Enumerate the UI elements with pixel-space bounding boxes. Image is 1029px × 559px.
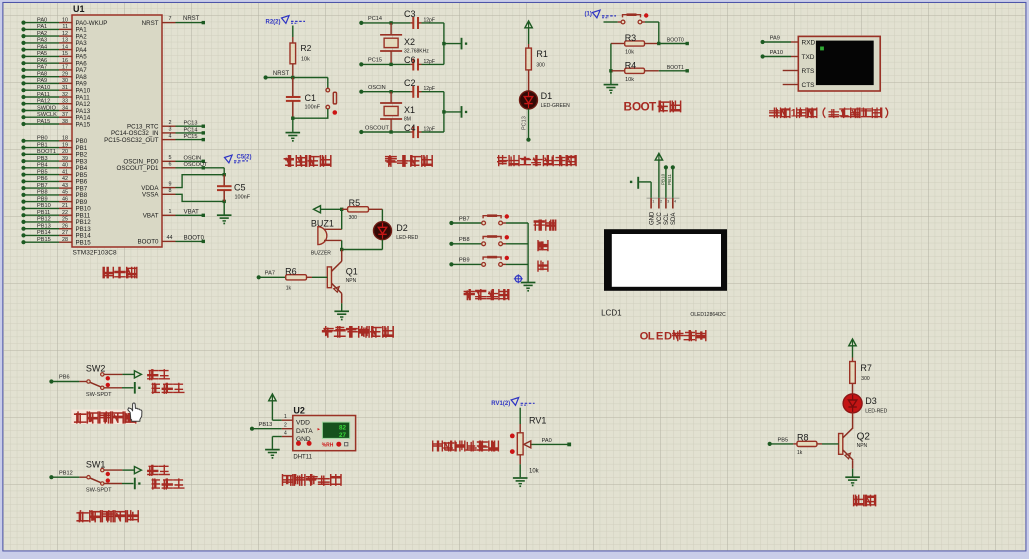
svg-text:PB14: PB14 [37, 230, 51, 236]
svg-text:X1: X1 [404, 105, 415, 115]
svg-text:PA5: PA5 [37, 51, 47, 57]
svg-text:C3: C3 [404, 9, 416, 19]
svg-text:PA7: PA7 [37, 65, 47, 71]
svg-text:PC15: PC15 [368, 58, 382, 64]
svg-text:C2: C2 [404, 78, 416, 88]
svg-text:PA1: PA1 [37, 24, 47, 30]
svg-text:VBAT: VBAT [143, 213, 159, 220]
svg-text:1: 1 [284, 414, 287, 420]
svg-text:D2: D2 [396, 223, 408, 233]
svg-text:NRST: NRST [142, 20, 159, 27]
svg-text:PB6: PB6 [59, 375, 70, 381]
svg-text:PB7: PB7 [37, 183, 48, 189]
svg-text:PA10: PA10 [770, 50, 783, 56]
svg-text:300: 300 [536, 63, 545, 69]
svg-text:PC14: PC14 [184, 127, 198, 133]
svg-text:NPN: NPN [857, 443, 868, 449]
svg-text:B: B [624, 100, 633, 114]
svg-text:BOOT0: BOOT0 [138, 239, 160, 246]
svg-text:46: 46 [62, 196, 68, 202]
svg-text:10k: 10k [301, 57, 310, 63]
svg-text:NPN: NPN [346, 278, 357, 284]
svg-text:CTS: CTS [802, 82, 816, 89]
svg-text:BUZZER: BUZZER [311, 251, 331, 257]
svg-text:%RH: %RH [322, 443, 334, 449]
svg-text:SWCLK: SWCLK [37, 112, 57, 118]
svg-text:STM32F103C8: STM32F103C8 [73, 250, 117, 257]
svg-text:12: 12 [62, 31, 68, 37]
svg-text:PB11: PB11 [37, 210, 50, 216]
svg-text:17: 17 [62, 65, 68, 71]
svg-text:SWDIO: SWDIO [37, 105, 57, 111]
svg-text:R7: R7 [860, 363, 872, 373]
svg-text:PB15: PB15 [37, 237, 51, 243]
svg-text:22: 22 [62, 210, 68, 216]
svg-text:BOOT1: BOOT1 [667, 65, 684, 71]
svg-text:PA4: PA4 [37, 44, 47, 50]
svg-text:4: 4 [169, 133, 172, 139]
svg-text:OSCIN: OSCIN [368, 85, 386, 91]
svg-text:BOOT1: BOOT1 [37, 149, 56, 155]
svg-text:PB6: PB6 [37, 176, 48, 182]
svg-text:100nF: 100nF [305, 105, 321, 111]
svg-text:X2: X2 [404, 37, 415, 47]
svg-text:300: 300 [861, 376, 870, 382]
svg-text:27: 27 [339, 432, 347, 439]
svg-text:PA7: PA7 [265, 271, 275, 277]
svg-text:TXD: TXD [802, 54, 815, 61]
svg-text:27: 27 [62, 230, 68, 236]
svg-text:PB8: PB8 [37, 190, 48, 196]
svg-text:10k: 10k [625, 50, 634, 56]
svg-text:12pF: 12pF [424, 59, 435, 65]
svg-text:SCL: SCL [664, 213, 670, 225]
svg-text:BUZ1: BUZ1 [311, 219, 334, 229]
svg-text:SW2: SW2 [86, 364, 106, 374]
svg-text:1: 1 [652, 200, 654, 204]
svg-text:SW1: SW1 [86, 459, 106, 469]
svg-text:10k: 10k [625, 77, 634, 83]
svg-text:VDD: VDD [296, 420, 310, 427]
svg-text:21: 21 [62, 203, 68, 209]
svg-text:2: 2 [284, 423, 287, 429]
svg-text:RTS: RTS [802, 68, 816, 75]
svg-text:15: 15 [62, 51, 68, 57]
svg-text:PB4: PB4 [37, 163, 48, 169]
svg-text:C1: C1 [305, 93, 317, 103]
svg-text:11: 11 [62, 24, 68, 30]
svg-text:Q1: Q1 [346, 267, 358, 277]
svg-text:45: 45 [62, 190, 68, 196]
svg-text:OSCOUT: OSCOUT [365, 125, 390, 131]
svg-text:300: 300 [349, 215, 358, 221]
svg-text:8: 8 [169, 188, 172, 194]
svg-text:10: 10 [62, 17, 68, 23]
svg-text:LED-GREEN: LED-GREEN [541, 103, 571, 109]
svg-text:19: 19 [62, 142, 68, 148]
svg-text:30: 30 [62, 78, 68, 84]
svg-text:R3: R3 [625, 33, 637, 43]
svg-text:D3: D3 [865, 396, 877, 406]
svg-text:PC15: PC15 [184, 134, 198, 140]
svg-text:VBAT: VBAT [184, 209, 200, 215]
svg-text:5: 5 [169, 155, 172, 161]
svg-text:PA10: PA10 [37, 85, 50, 91]
svg-text:OSCOUT: OSCOUT [184, 162, 209, 168]
svg-text:9: 9 [169, 181, 172, 187]
svg-text:DHT11: DHT11 [293, 455, 312, 461]
svg-text:RV1(2): RV1(2) [491, 401, 510, 407]
svg-text:VSSA: VSSA [142, 192, 159, 199]
svg-text:LED-RED: LED-RED [396, 235, 418, 241]
svg-text:RV1: RV1 [529, 416, 546, 426]
svg-text:82: 82 [339, 425, 347, 432]
svg-text:Q2: Q2 [857, 432, 871, 443]
svg-text:R4: R4 [625, 60, 637, 70]
svg-text:SW-SPDT: SW-SPDT [86, 488, 112, 494]
svg-text:8M: 8M [404, 117, 411, 123]
svg-text:1k: 1k [797, 450, 803, 456]
svg-text:39: 39 [62, 156, 68, 162]
svg-text:1: 1 [791, 108, 797, 120]
svg-text:PA0: PA0 [37, 17, 47, 23]
svg-text:C5(2): C5(2) [237, 155, 252, 161]
svg-text:29: 29 [62, 72, 68, 78]
svg-text:PB9: PB9 [459, 258, 470, 264]
svg-text:PB1: PB1 [37, 142, 48, 148]
svg-text:4: 4 [284, 431, 287, 437]
svg-text:RXD: RXD [802, 40, 816, 47]
svg-text:16: 16 [62, 58, 68, 64]
svg-text:PA15: PA15 [76, 121, 91, 128]
svg-text:PA2: PA2 [37, 31, 47, 37]
svg-text:33: 33 [62, 99, 68, 105]
svg-text:GND: GND [649, 211, 655, 225]
svg-text:12pF: 12pF [424, 86, 435, 92]
svg-text:12pF: 12pF [424, 17, 435, 23]
svg-text:PA9: PA9 [770, 36, 780, 42]
svg-text:13: 13 [62, 38, 68, 44]
svg-text:32: 32 [62, 92, 68, 98]
svg-text:100nF: 100nF [235, 195, 251, 201]
svg-text:PB5: PB5 [778, 437, 789, 443]
svg-text:PA9: PA9 [37, 78, 47, 84]
svg-text:D1: D1 [541, 91, 553, 101]
svg-text:R8: R8 [797, 433, 809, 443]
svg-text:BOOT0: BOOT0 [184, 235, 205, 241]
svg-text:PB13: PB13 [259, 422, 273, 428]
svg-text:42: 42 [62, 176, 68, 182]
svg-text:R2: R2 [301, 43, 312, 53]
svg-text:37: 37 [62, 112, 68, 118]
svg-text:2: 2 [660, 200, 662, 204]
svg-text:7: 7 [169, 16, 172, 22]
svg-text:SW-SPDT: SW-SPDT [86, 392, 112, 398]
svg-text:4: 4 [674, 200, 676, 204]
svg-text:PB0: PB0 [37, 136, 48, 142]
svg-text:41: 41 [62, 169, 68, 175]
svg-text:R5: R5 [349, 198, 361, 208]
svg-text:PC14: PC14 [368, 16, 382, 22]
svg-text:OSCOUT_PD1: OSCOUT_PD1 [117, 165, 160, 172]
svg-text:R2(2): R2(2) [266, 20, 281, 26]
svg-text:25: 25 [62, 217, 68, 223]
svg-text:14: 14 [62, 44, 68, 50]
svg-text:PA8: PA8 [37, 72, 47, 78]
svg-text:E: E [656, 331, 664, 343]
svg-text:43: 43 [62, 183, 68, 189]
svg-text:PB15: PB15 [76, 240, 92, 247]
svg-text:PC13: PC13 [184, 121, 198, 127]
svg-text:12pF: 12pF [424, 126, 435, 132]
svg-text:PB5: PB5 [37, 169, 48, 175]
svg-text:6: 6 [169, 162, 172, 168]
svg-text:PB12: PB12 [59, 470, 73, 476]
svg-text:LCD1: LCD1 [601, 309, 622, 318]
svg-text:38: 38 [62, 119, 68, 125]
svg-text:40: 40 [62, 163, 68, 169]
svg-text:PB12: PB12 [37, 217, 51, 223]
svg-text:OLED12864I2C: OLED12864I2C [690, 312, 726, 318]
svg-text:28: 28 [62, 237, 68, 243]
svg-text:U1: U1 [73, 4, 85, 14]
svg-text:NRST: NRST [273, 71, 290, 77]
svg-text:NRST: NRST [183, 16, 200, 22]
svg-text:3: 3 [667, 200, 669, 204]
svg-text:32.768KHz: 32.768KHz [404, 49, 429, 55]
svg-text:PB11: PB11 [667, 174, 672, 185]
svg-text:1: 1 [169, 209, 172, 215]
svg-text:20: 20 [62, 149, 68, 155]
svg-text:PA15: PA15 [37, 119, 50, 125]
svg-text:VCC: VCC [657, 212, 663, 225]
svg-text:44: 44 [167, 235, 173, 241]
svg-text:10k: 10k [529, 469, 540, 475]
svg-text:PC13: PC13 [522, 116, 528, 130]
svg-text:PA12: PA12 [37, 99, 50, 105]
svg-text:34: 34 [62, 105, 68, 111]
svg-text:PB9: PB9 [37, 196, 48, 202]
svg-text:R6: R6 [285, 267, 297, 277]
svg-text:C4: C4 [404, 123, 416, 133]
svg-text:PC15-OSC32_OUT: PC15-OSC32_OUT [104, 137, 159, 144]
svg-text:18: 18 [62, 136, 68, 142]
svg-text:C5: C5 [234, 183, 246, 193]
svg-text:PB8: PB8 [459, 237, 470, 243]
svg-text:PB13: PB13 [37, 224, 51, 230]
svg-text:2: 2 [169, 120, 172, 126]
svg-text:L: L [648, 331, 655, 343]
svg-text:C6: C6 [404, 55, 416, 65]
svg-text:U2: U2 [293, 406, 305, 416]
svg-text:PB10: PB10 [37, 203, 51, 209]
svg-text:PA3: PA3 [37, 38, 47, 44]
svg-text:SDA: SDA [671, 213, 677, 225]
svg-text:LED-RED: LED-RED [865, 408, 887, 414]
svg-text:PA0: PA0 [542, 438, 552, 444]
svg-text:D: D [664, 331, 672, 343]
svg-text:DATA: DATA [296, 428, 313, 435]
svg-text:PA11: PA11 [37, 92, 50, 98]
svg-text:T: T [649, 100, 657, 114]
svg-text:OSCIN: OSCIN [184, 156, 202, 162]
svg-text:R1: R1 [536, 49, 548, 59]
svg-text:1k: 1k [286, 286, 292, 292]
svg-text:26: 26 [62, 224, 68, 230]
svg-text:PB3: PB3 [37, 156, 48, 162]
svg-text:31: 31 [62, 85, 68, 91]
svg-text:PB10: PB10 [660, 173, 665, 185]
svg-text:PA6: PA6 [37, 58, 47, 64]
svg-text:BOOT0: BOOT0 [667, 38, 684, 44]
svg-text:3: 3 [169, 127, 172, 133]
svg-text:(1): (1) [585, 12, 592, 18]
svg-text:PB7: PB7 [459, 216, 470, 222]
